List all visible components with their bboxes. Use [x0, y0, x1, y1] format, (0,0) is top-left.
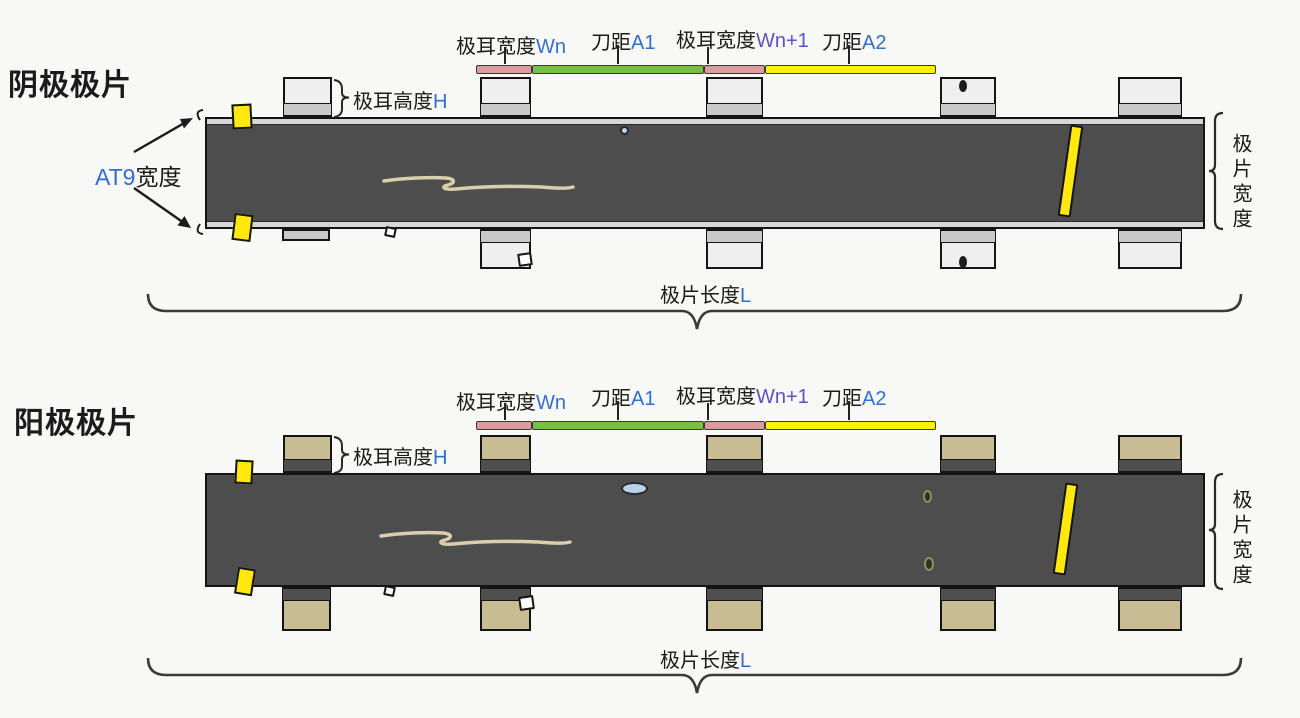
tab-coated-band: [707, 589, 762, 601]
cathode-bottom-tab: [1118, 229, 1182, 269]
tab-coated-band: [481, 103, 530, 115]
tab-coated-band: [941, 589, 995, 601]
sheet-length-text: 极片长度: [660, 650, 740, 672]
edge-notch-defect: [383, 585, 396, 597]
at9-text: 宽度: [135, 164, 181, 190]
tab-coated-band: [1119, 231, 1181, 243]
tab-width-next-var: Wn+1: [756, 386, 809, 408]
anode-bottom-tab: [940, 587, 996, 631]
knife-a1-var: A1: [631, 388, 655, 410]
tab-width-next-text: 极耳宽度: [676, 386, 756, 408]
anode-top-tab: [706, 435, 763, 473]
cathode-strip: [205, 117, 1205, 229]
anode-top-tab: [283, 435, 332, 473]
tab-coated-band: [707, 459, 762, 471]
leader-tick: [617, 45, 619, 64]
at9-marker-bottom: [231, 213, 253, 242]
anode-sheet-length-label: 极片长度L: [660, 644, 751, 673]
tab-punch-hole: [959, 256, 967, 268]
tab-width-var: Wn: [536, 392, 566, 414]
tab-width-bar: [476, 421, 532, 430]
foil-edge-top: [207, 119, 1203, 125]
knife-a2-text: 刀距: [822, 32, 862, 54]
tab-height-brace: [334, 437, 349, 473]
cathode-sheet-width-label: 极片宽度: [1226, 133, 1255, 233]
tab-coated-band: [481, 459, 530, 471]
anode-bottom-tab: [1118, 587, 1182, 631]
sheet-length-var: L: [740, 650, 751, 672]
tab-coated-band: [1119, 589, 1181, 601]
cathode-top-tab: [283, 77, 332, 117]
tab-width-text: 极耳宽度: [456, 36, 536, 58]
tab-coated-band: [283, 589, 330, 601]
splice-marker-bottom: [234, 567, 256, 596]
sheet-width-brace: [1209, 474, 1223, 589]
knife-a2-bar: [765, 421, 936, 430]
cathode-knife-a1-label: 刀距A1: [591, 26, 655, 55]
at9-arrow-top: [134, 110, 203, 152]
cathode-bottom-tab-stub: [282, 229, 330, 241]
anode-top-tab: [480, 435, 531, 473]
tab-width-bar: [476, 65, 532, 74]
cathode-tab-width-next-label: 极耳宽度Wn+1: [676, 24, 809, 53]
leader-tick: [848, 401, 850, 420]
cathode-knife-a2-label: 刀距A2: [822, 26, 886, 55]
knife-a1-text: 刀距: [591, 32, 631, 54]
edge-notch-defect: [517, 252, 533, 267]
leader-tick: [504, 47, 506, 64]
anode-tab-width-next-label: 极耳宽度Wn+1: [676, 380, 809, 409]
cathode-bottom-tab: [706, 229, 763, 269]
knife-a1-var: A1: [631, 32, 655, 54]
leader-tick: [848, 45, 850, 64]
cathode-tab-height-label: 极耳高度H: [353, 85, 447, 114]
sheet-width-brace: [1209, 113, 1223, 229]
cathode-top-tab: [940, 77, 996, 117]
splice-marker-top: [234, 460, 253, 485]
tab-height-text: 极耳高度: [353, 91, 433, 113]
leader-tick: [617, 401, 619, 420]
tab-coated-band: [707, 103, 762, 115]
tab-coated-band: [941, 103, 995, 115]
leader-tick: [504, 403, 506, 420]
cathode-sheet-length-label: 极片长度L: [660, 279, 751, 308]
tab-coated-band: [941, 459, 995, 471]
anode-top-tab: [940, 435, 996, 473]
tab-width-next-bar: [704, 421, 765, 430]
anode-title: 阳极极片: [14, 398, 138, 442]
knife-a2-bar: [765, 65, 936, 74]
anode-bottom-tab: [282, 587, 331, 631]
cathode-top-tab: [1118, 77, 1182, 117]
tab-coated-band: [481, 231, 530, 243]
at9-arrow-bottom: [134, 188, 203, 234]
knife-a1-bar: [532, 421, 704, 430]
anode-tab-width-label: 极耳宽度Wn: [456, 386, 566, 415]
anode-tab-height-label: 极耳高度H: [353, 441, 447, 470]
tab-coated-band: [1119, 103, 1181, 115]
annotation-overlay: [0, 0, 1300, 718]
cathode-tab-width-label: 极耳宽度Wn: [456, 30, 566, 59]
tab-punch-hole: [959, 80, 967, 92]
edge-notch-defect: [518, 595, 535, 611]
anode-knife-a1-label: 刀距A1: [591, 382, 655, 411]
tab-height-brace: [334, 80, 349, 117]
tab-width-next-var: Wn+1: [756, 30, 809, 52]
tab-coated-band: [1119, 459, 1181, 471]
tab-coated-band: [707, 231, 762, 243]
tab-coated-band: [941, 231, 995, 243]
foil-edge-bottom: [207, 221, 1203, 227]
tab-height-var: H: [433, 447, 447, 469]
leader-tick: [707, 403, 709, 420]
tab-width-text: 极耳宽度: [456, 392, 536, 414]
tab-height-var: H: [433, 91, 447, 113]
cathode-top-tab: [706, 77, 763, 117]
tab-width-next-text: 极耳宽度: [676, 30, 756, 52]
knife-a2-var: A2: [862, 32, 886, 54]
tab-width-next-bar: [704, 65, 765, 74]
battery-electrode-diagram: 阴极极片 极耳宽度Wn 刀距A1 极耳宽度Wn+1 刀距A2 极耳高度H: [0, 0, 1300, 718]
cathode-bottom-tab: [940, 229, 996, 269]
anode-knife-a2-label: 刀距A2: [822, 382, 886, 411]
edge-notch-defect: [384, 226, 397, 238]
at9-marker-top: [231, 103, 252, 129]
sheet-length-text: 极片长度: [660, 285, 740, 307]
tab-coated-band: [284, 459, 331, 471]
sheet-length-var: L: [740, 285, 751, 307]
knife-a1-text: 刀距: [591, 388, 631, 410]
tab-height-text: 极耳高度: [353, 447, 433, 469]
at9-var: AT9: [95, 164, 135, 190]
anode-sheet-width-label: 极片宽度: [1226, 489, 1255, 589]
pinhole-defect: [923, 490, 932, 503]
leader-tick: [707, 47, 709, 64]
knife-a2-var: A2: [862, 388, 886, 410]
anode-bottom-tab: [706, 587, 763, 631]
pinhole-defect: [924, 557, 934, 571]
pinhole-defect: [620, 126, 629, 135]
cathode-title: 阴极极片: [8, 60, 132, 104]
cathode-top-tab: [480, 77, 531, 117]
at9-width-label: AT9宽度: [95, 158, 181, 192]
bubble-defect: [621, 482, 648, 495]
tab-coated-band: [284, 103, 331, 115]
anode-top-tab: [1118, 435, 1182, 473]
tab-width-var: Wn: [536, 36, 566, 58]
knife-a1-bar: [532, 65, 704, 74]
knife-a2-text: 刀距: [822, 388, 862, 410]
